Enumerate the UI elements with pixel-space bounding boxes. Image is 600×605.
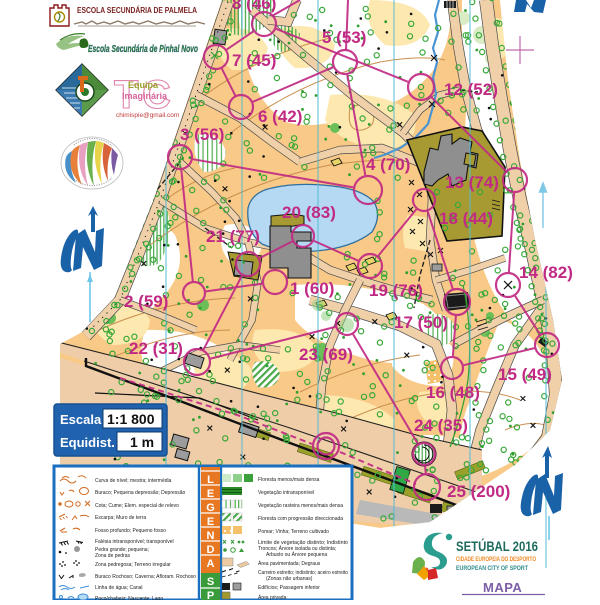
svg-text:12 (52): 12 (52) [444, 80, 498, 99]
svg-text:Escarpa; Muro de terra: Escarpa; Muro de terra [95, 515, 146, 521]
svg-text:7 (45): 7 (45) [232, 51, 276, 70]
svg-text:Linha de água; Canal: Linha de água; Canal [95, 585, 143, 591]
svg-text:Escola Secundária de Pinhal No: Escola Secundária de Pinhal Novo [88, 43, 198, 55]
svg-text:17 (50): 17 (50) [394, 313, 448, 332]
svg-text:13 (74): 13 (74) [445, 173, 499, 192]
svg-text:1:1 800: 1:1 800 [107, 411, 155, 427]
svg-text:CIDADE EUROPEIA DO DESPORTO: CIDADE EUROPEIA DO DESPORTO [456, 557, 536, 563]
svg-text:chimispie@gmail.com: chimispie@gmail.com [116, 112, 179, 119]
svg-text:Equidist.: Equidist. [60, 435, 115, 450]
svg-text:L: L [207, 474, 214, 486]
svg-text:Troncos; Árvore isolada ou dis: Troncos; Árvore isolada ou distinta; [258, 545, 336, 552]
svg-text:Zona de pedras: Zona de pedras [95, 553, 131, 559]
svg-text:Edifícios; Passagem inferior: Edifícios; Passagem inferior [258, 585, 320, 591]
svg-text:P: P [207, 590, 214, 600]
svg-text:Poço/chafariz; Nascente; Lago: Poço/chafariz; Nascente; Lago [95, 596, 163, 600]
svg-text:1 m: 1 m [130, 434, 154, 450]
svg-text:ESCOLA SECUNDÁRIA DE PALMELA: ESCOLA SECUNDÁRIA DE PALMELA [77, 6, 197, 15]
svg-text:Equipa: Equipa [128, 80, 159, 90]
svg-text:Imaginária: Imaginária [122, 91, 168, 101]
svg-text:Falésia intransponível; transp: Falésia intransponível; transponível [95, 539, 174, 545]
svg-text:Floresta menos/mais densa: Floresta menos/mais densa [258, 477, 320, 483]
svg-text:Vegetação intransponível: Vegetação intransponível [258, 490, 314, 496]
svg-text:8 (46): 8 (46) [232, 0, 276, 13]
svg-text:G: G [206, 502, 215, 514]
svg-text:Vegetação rasteira menos/mais: Vegetação rasteira menos/mais densa [258, 503, 343, 509]
svg-text:5 (53): 5 (53) [322, 28, 366, 47]
svg-text:Floresta com progressão direcc: Floresta com progressão direccionada [258, 516, 343, 522]
svg-text:Pomar; Vinha; Terreno cultivad: Pomar; Vinha; Terreno cultivado [258, 529, 329, 535]
svg-text:19 (76): 19 (76) [369, 281, 423, 300]
svg-text:23 (69): 23 (69) [299, 345, 353, 364]
svg-text:MAPA: MAPA [483, 580, 522, 595]
svg-text:Arbusto ou Árvore pequena: Arbusto ou Árvore pequena [266, 551, 327, 558]
svg-text:Área pavimentada; Degraus: Área pavimentada; Degraus [258, 560, 321, 567]
svg-text:Zona pedregosa; Terreno irregu: Zona pedregosa; Terreno irregular [95, 562, 171, 568]
svg-text:1 (60): 1 (60) [290, 279, 334, 298]
svg-text:Buraco Rochoso; Caverna; Aflor: Buraco Rochoso; Caverna; Afloram. Rochos… [95, 574, 196, 580]
svg-text:N: N [207, 530, 215, 542]
svg-text:25 (200): 25 (200) [447, 482, 510, 501]
svg-text:4 (70): 4 (70) [366, 155, 410, 174]
svg-text:S: S [207, 576, 214, 588]
svg-text:EUROPEAN CITY OF SPORT: EUROPEAN CITY OF SPORT [456, 566, 528, 572]
svg-text:Escala: Escala [60, 412, 102, 427]
svg-text:Fosso profundo; Pequeno fosso: Fosso profundo; Pequeno fosso [95, 528, 166, 534]
svg-text:20 (83): 20 (83) [282, 203, 336, 222]
svg-text:24 (35): 24 (35) [414, 416, 468, 435]
svg-text:Buraco; Pequena depressão; Dep: Buraco; Pequena depressão; Depressão [95, 490, 186, 496]
svg-text:E: E [207, 488, 214, 500]
svg-text:18 (44): 18 (44) [439, 209, 493, 228]
svg-text:D: D [207, 544, 215, 556]
svg-text:E: E [207, 516, 214, 528]
svg-text:6 (42): 6 (42) [258, 107, 302, 126]
svg-text:15 (49): 15 (49) [498, 365, 552, 384]
svg-text:Área privada: Área privada [258, 594, 287, 600]
svg-text:A: A [207, 558, 215, 570]
svg-text:Cota; Cume; Elem. especial de: Cota; Cume; Elem. especial de relevo [95, 503, 179, 509]
svg-text:SETÚBAL 2016: SETÚBAL 2016 [456, 539, 538, 554]
svg-text:16 (48): 16 (48) [426, 383, 480, 402]
svg-text:3 (56): 3 (56) [180, 125, 224, 144]
svg-text:2 (59): 2 (59) [124, 292, 168, 311]
svg-text:21 (77): 21 (77) [206, 227, 260, 246]
svg-text:22 (31): 22 (31) [129, 339, 183, 358]
svg-text:14 (82): 14 (82) [519, 263, 573, 282]
svg-text:(Zonas não urbanas): (Zonas não urbanas) [266, 576, 313, 582]
svg-text:Curva de nível; mestra; interm: Curva de nível; mestra; intermédia [95, 478, 172, 484]
